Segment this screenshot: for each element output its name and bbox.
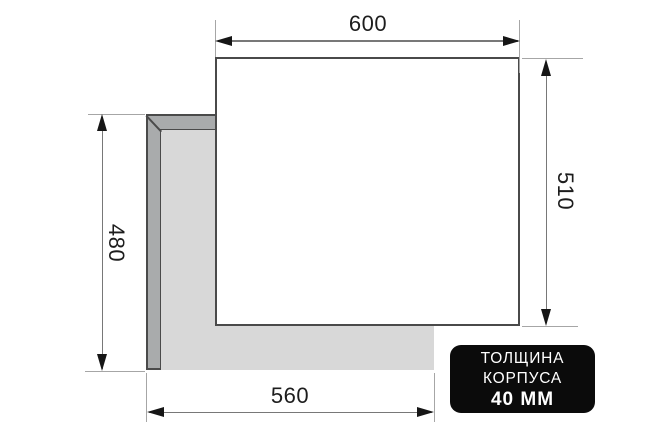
arrowhead-down-icon [541,309,551,326]
badge-line-1: ТОЛЩИНА [481,349,565,369]
arrowhead-left-icon [147,407,164,417]
dim-top-label: 600 [330,12,406,36]
dim-bottom-label: 560 [252,384,328,408]
arrowhead-left-icon [215,36,232,46]
dimension-line-top [218,40,518,41]
arrowhead-up-icon [97,114,107,131]
badge-line-2: КОРПУСА [483,369,562,389]
dimension-line-bottom [149,412,432,413]
panel-rect [215,57,520,326]
arrowhead-up-icon [541,59,551,76]
extension-line-right-top [522,58,583,59]
arrowhead-right-icon [417,407,434,417]
dim-right-label: 510 [553,159,577,223]
arrowhead-right-icon [503,36,520,46]
badge-line-3: 40 ММ [491,389,554,410]
dimension-drawing: 600 510 480 560 ТОЛЩИНА КОРПУСА 40 ММ [0,0,666,444]
thickness-badge: ТОЛЩИНА КОРПУСА 40 ММ [450,345,595,413]
extension-line-top-right [519,20,520,73]
dimension-line-right [546,62,547,323]
arrowhead-down-icon [97,354,107,371]
extension-line-left-bottom [85,371,145,372]
dim-left-label: 480 [104,211,128,275]
